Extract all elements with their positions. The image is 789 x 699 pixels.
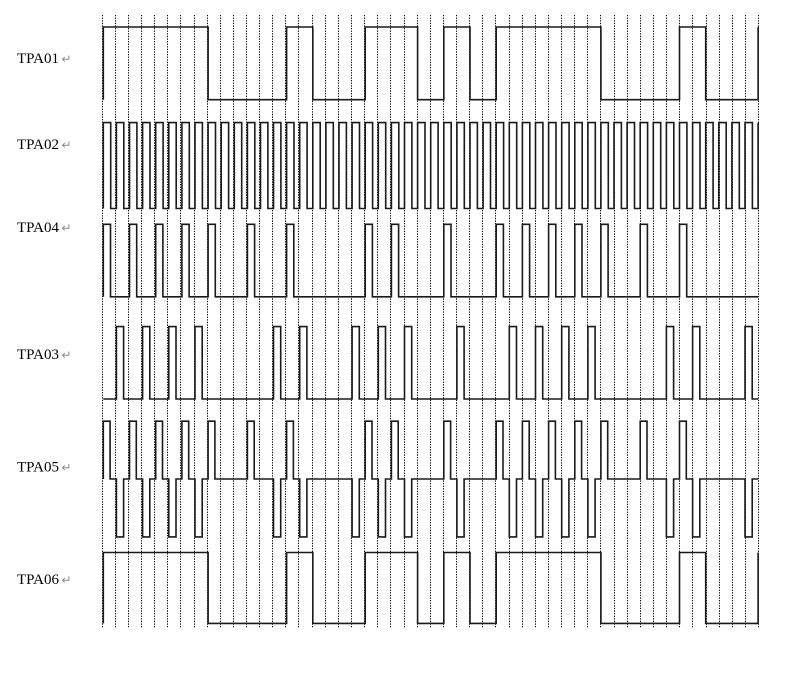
svg-text:TPA02: TPA02 xyxy=(17,137,59,153)
svg-text:TPA01: TPA01 xyxy=(17,51,59,67)
svg-text:↵: ↵ xyxy=(62,138,72,152)
svg-text:TPA04: TPA04 xyxy=(17,220,59,236)
svg-text:↵: ↵ xyxy=(62,573,72,587)
svg-text:↵: ↵ xyxy=(62,348,72,362)
svg-text:TPA06: TPA06 xyxy=(17,572,59,588)
svg-text:↵: ↵ xyxy=(62,52,72,66)
svg-text:TPA03: TPA03 xyxy=(17,347,59,363)
svg-text:TPA05: TPA05 xyxy=(17,460,59,476)
svg-text:↵: ↵ xyxy=(62,221,72,235)
svg-text:↵: ↵ xyxy=(62,461,72,475)
